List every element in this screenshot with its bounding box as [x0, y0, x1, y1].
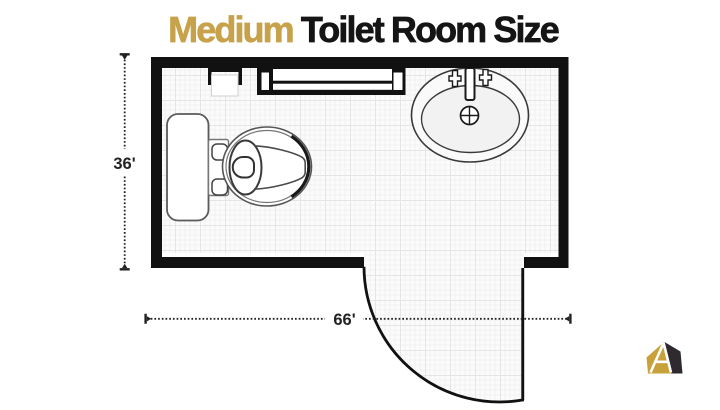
svg-text:36': 36'	[113, 155, 135, 173]
svg-text:66': 66'	[333, 311, 355, 329]
